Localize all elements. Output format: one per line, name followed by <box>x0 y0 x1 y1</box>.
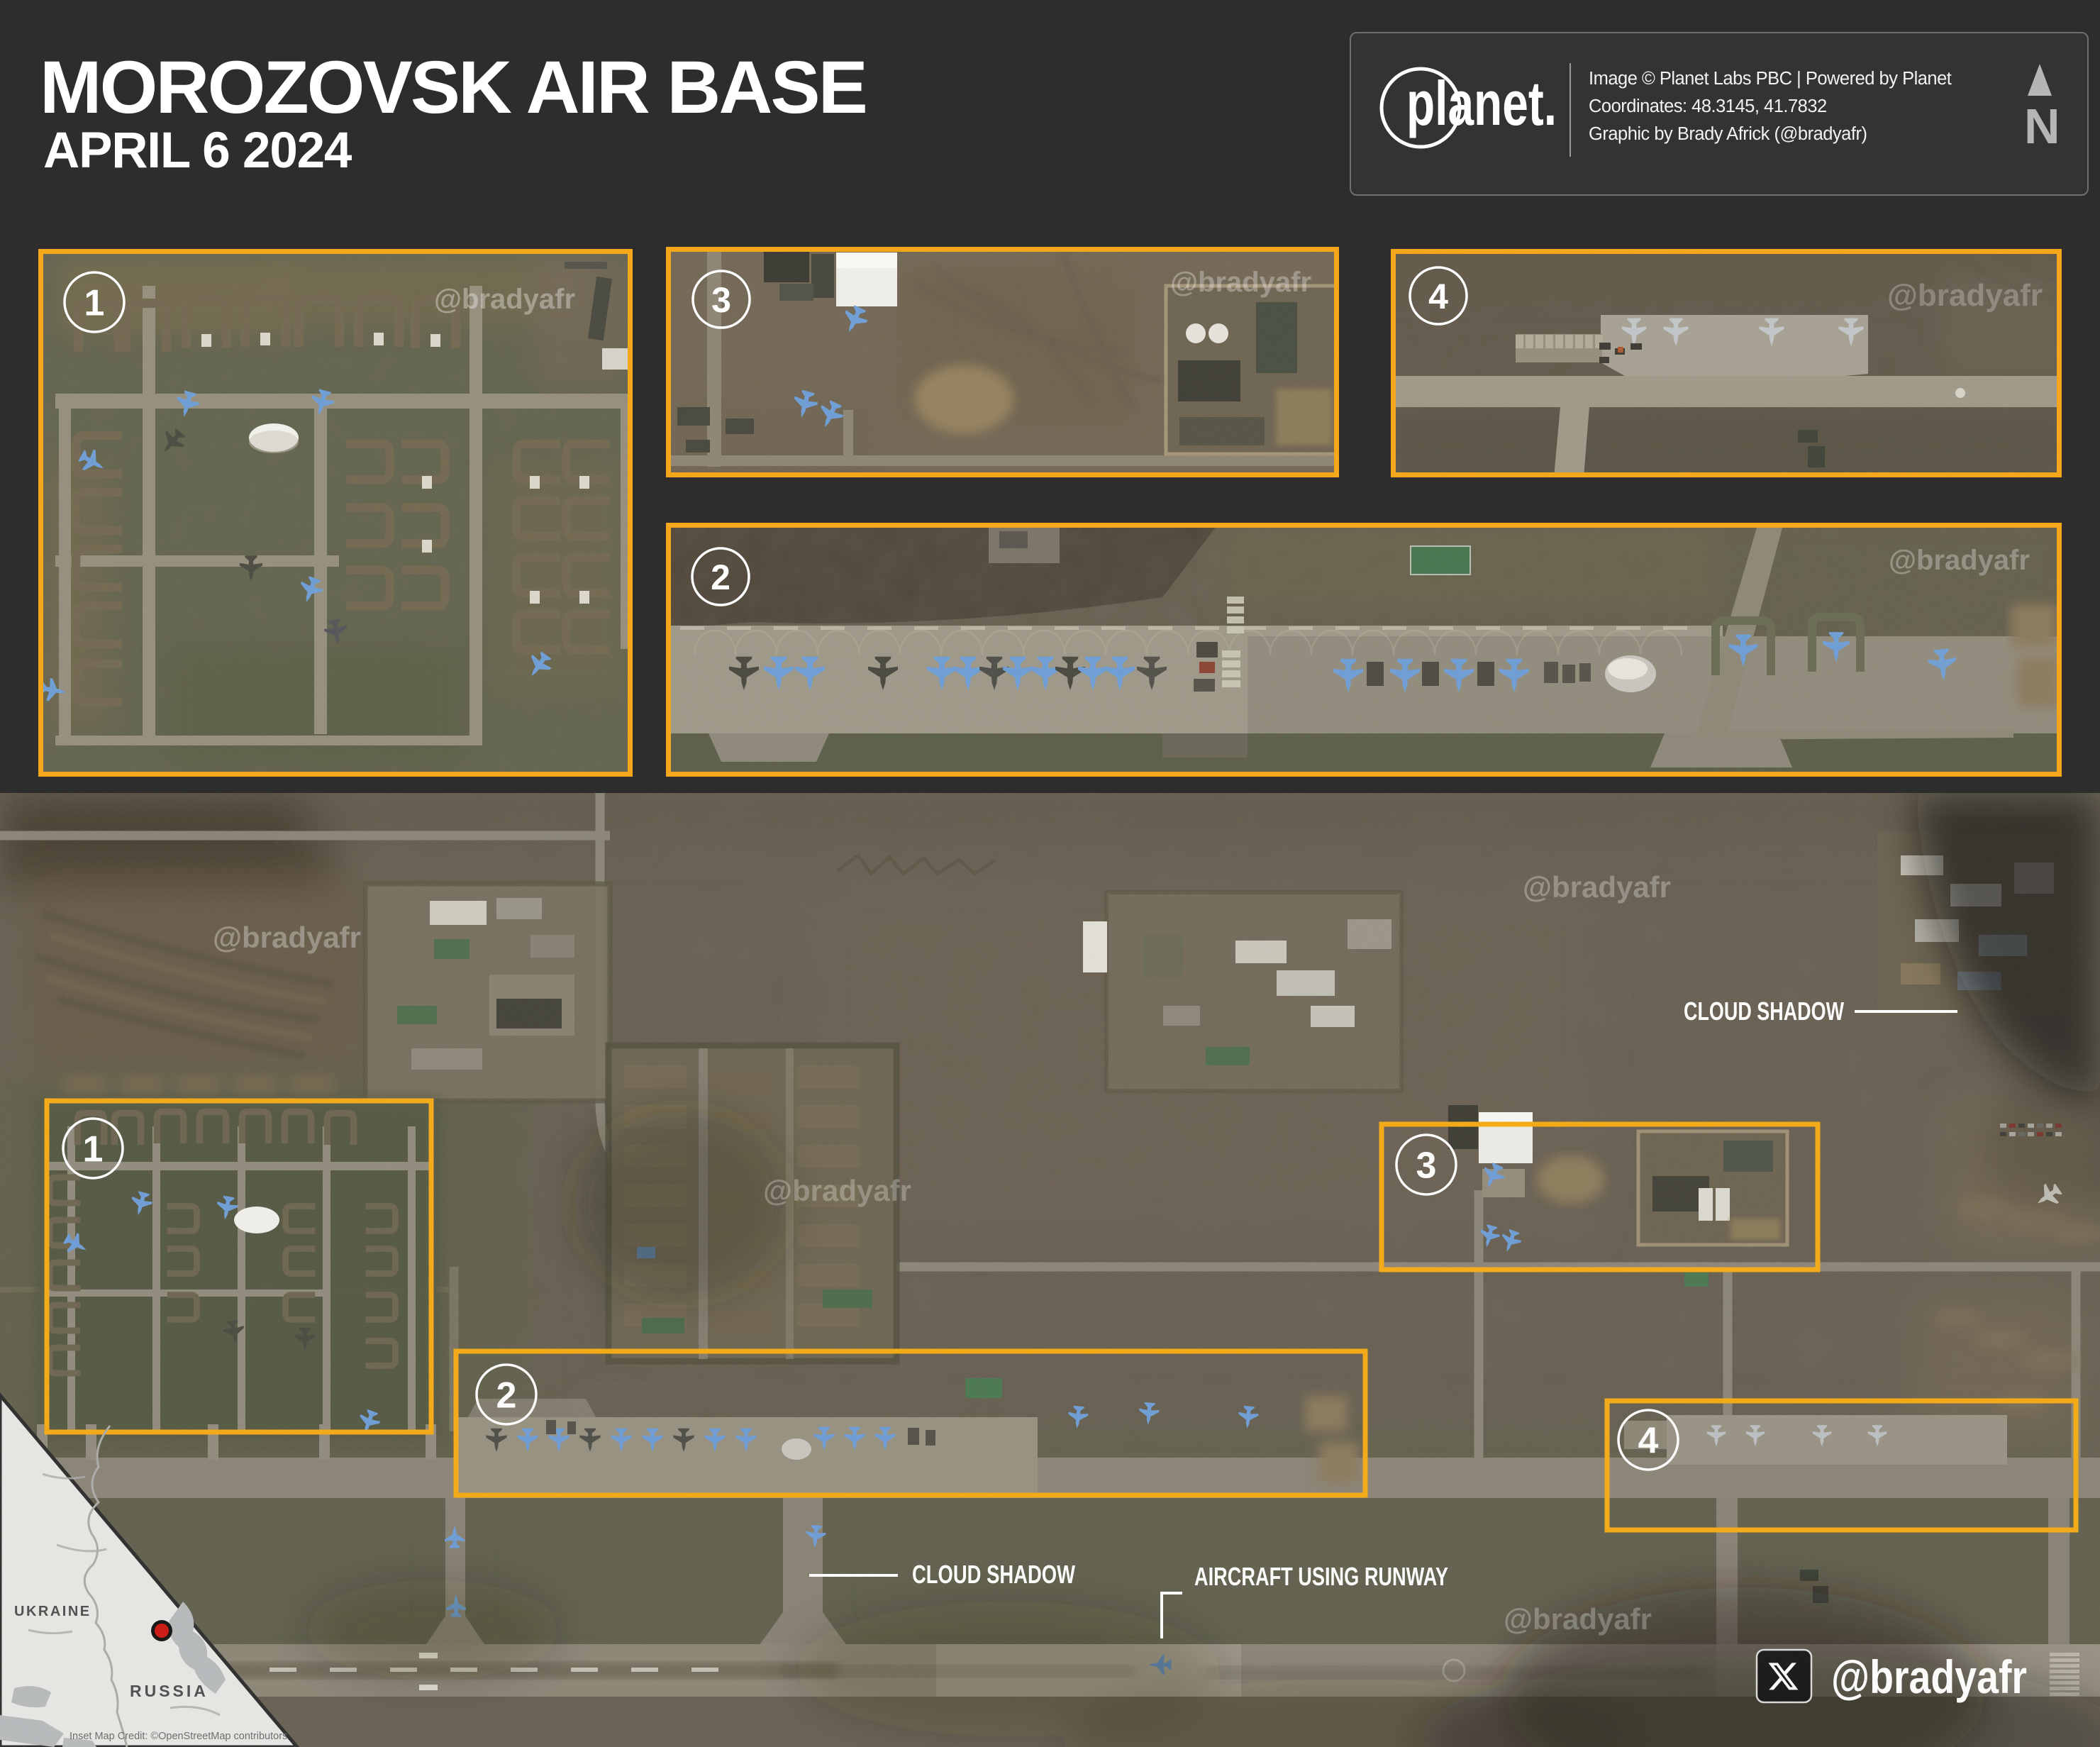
svg-text:3: 3 <box>711 280 731 320</box>
svg-text:@bradyafr: @bradyafr <box>434 284 575 315</box>
svg-text:@bradyafr: @bradyafr <box>1170 267 1311 298</box>
svg-text:2: 2 <box>711 558 730 597</box>
svg-text:planet.: planet. <box>1406 68 1557 138</box>
svg-text:4: 4 <box>1428 277 1448 316</box>
svg-text:@bradyafr: @bradyafr <box>1887 278 2043 313</box>
svg-text:@bradyafr: @bradyafr <box>1889 545 2030 576</box>
svg-text:N: N <box>2024 99 2060 150</box>
svg-text:1: 1 <box>84 283 105 324</box>
